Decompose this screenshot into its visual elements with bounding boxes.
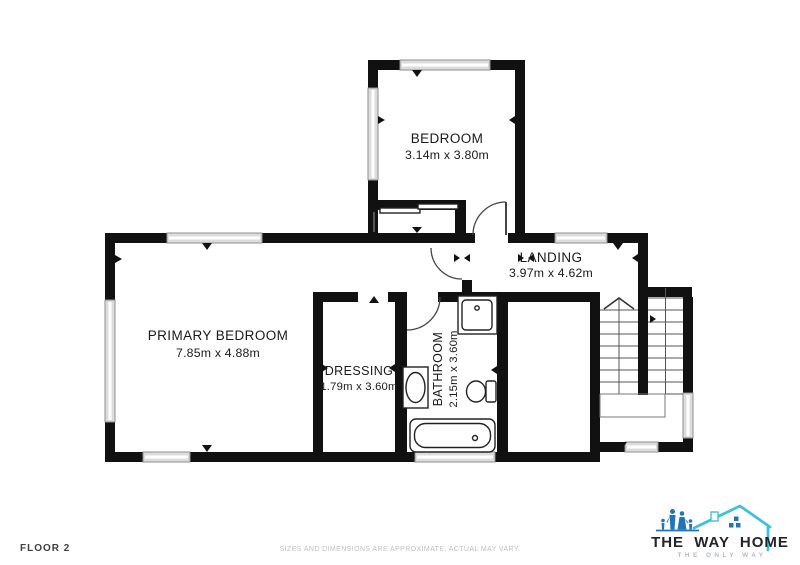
floor-label: FLOOR 2 (20, 543, 70, 554)
room-label-bathroom: BATHROOM (431, 332, 445, 407)
toilet-icon (467, 381, 497, 402)
floor-plan-page: BEDROOM 3.14m x 3.80m LANDING 3.97m x 4.… (0, 0, 800, 565)
door-primary-bedroom (431, 248, 462, 279)
brand-logo: THE WAY HOME THE ONLY WAY (651, 506, 789, 559)
room-dims-dressing: 1.79m x 3.60m (320, 381, 397, 393)
room-dims-bathroom: 2.15m x 3.60m (448, 330, 460, 407)
bathtub-icon (410, 419, 495, 452)
walls (105, 60, 693, 462)
room-label-landing: LANDING (520, 250, 583, 265)
room-label-bedroom: BEDROOM (411, 131, 484, 146)
sink-icon (403, 367, 428, 408)
door-bedroom (473, 202, 506, 235)
door-bathroom (407, 297, 440, 330)
room-dims-primary-bedroom: 7.85m x 4.88m (176, 346, 260, 360)
logo-tagline-text: THE ONLY WAY (678, 552, 767, 559)
floor-plan-canvas: BEDROOM 3.14m x 3.80m LANDING 3.97m x 4.… (0, 0, 800, 565)
window-stair-bottom (625, 442, 658, 452)
window-bedroom-top (400, 60, 490, 70)
window-bedroom-left (368, 88, 378, 180)
window-primary-bottom (143, 452, 190, 462)
logo-family-icon (656, 509, 699, 531)
window-stair-right (683, 393, 693, 438)
window-primary-top (167, 233, 262, 243)
logo-brand-text: THE WAY HOME (651, 534, 789, 551)
shower-icon (458, 296, 497, 334)
room-label-dressing: DRESSING (325, 364, 394, 378)
disclaimer-text: SIZES AND DIMENSIONS ARE APPROXIMATE, AC… (280, 546, 521, 553)
room-dims-landing: 3.97m x 4.62m (509, 266, 593, 280)
room-label-primary-bedroom: PRIMARY BEDROOM (148, 328, 289, 343)
window-primary-left (105, 300, 115, 422)
window-landing-top (555, 233, 607, 243)
window-bathroom-bottom (415, 452, 495, 462)
room-dims-bedroom: 3.14m x 3.80m (405, 148, 489, 162)
